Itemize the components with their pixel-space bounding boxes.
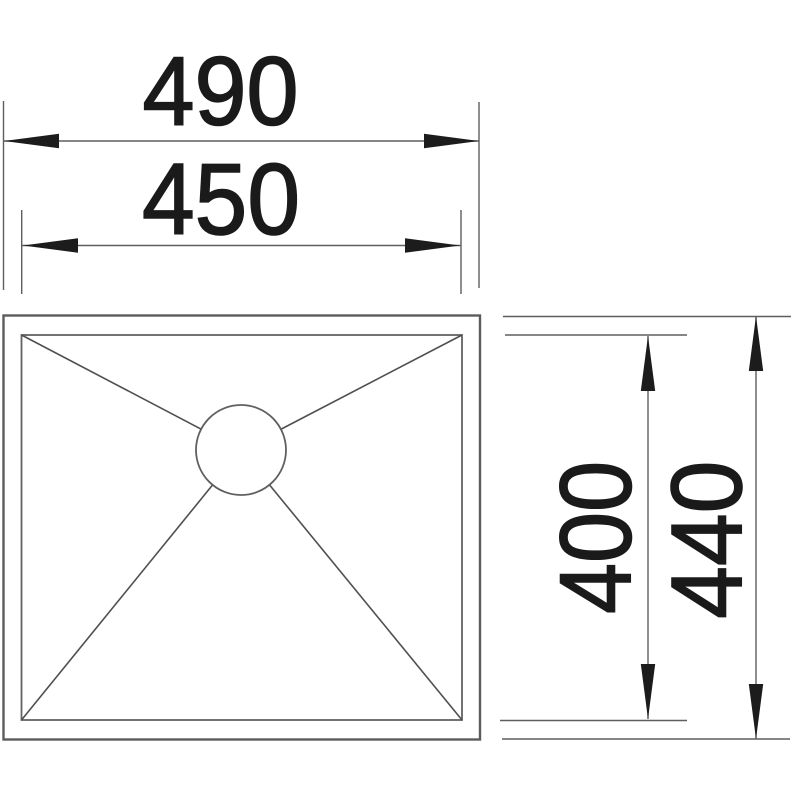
svg-text:450: 450	[142, 144, 300, 256]
svg-text:400: 400	[541, 461, 653, 614]
svg-text:490: 490	[143, 37, 299, 146]
svg-text:440: 440	[651, 461, 763, 619]
